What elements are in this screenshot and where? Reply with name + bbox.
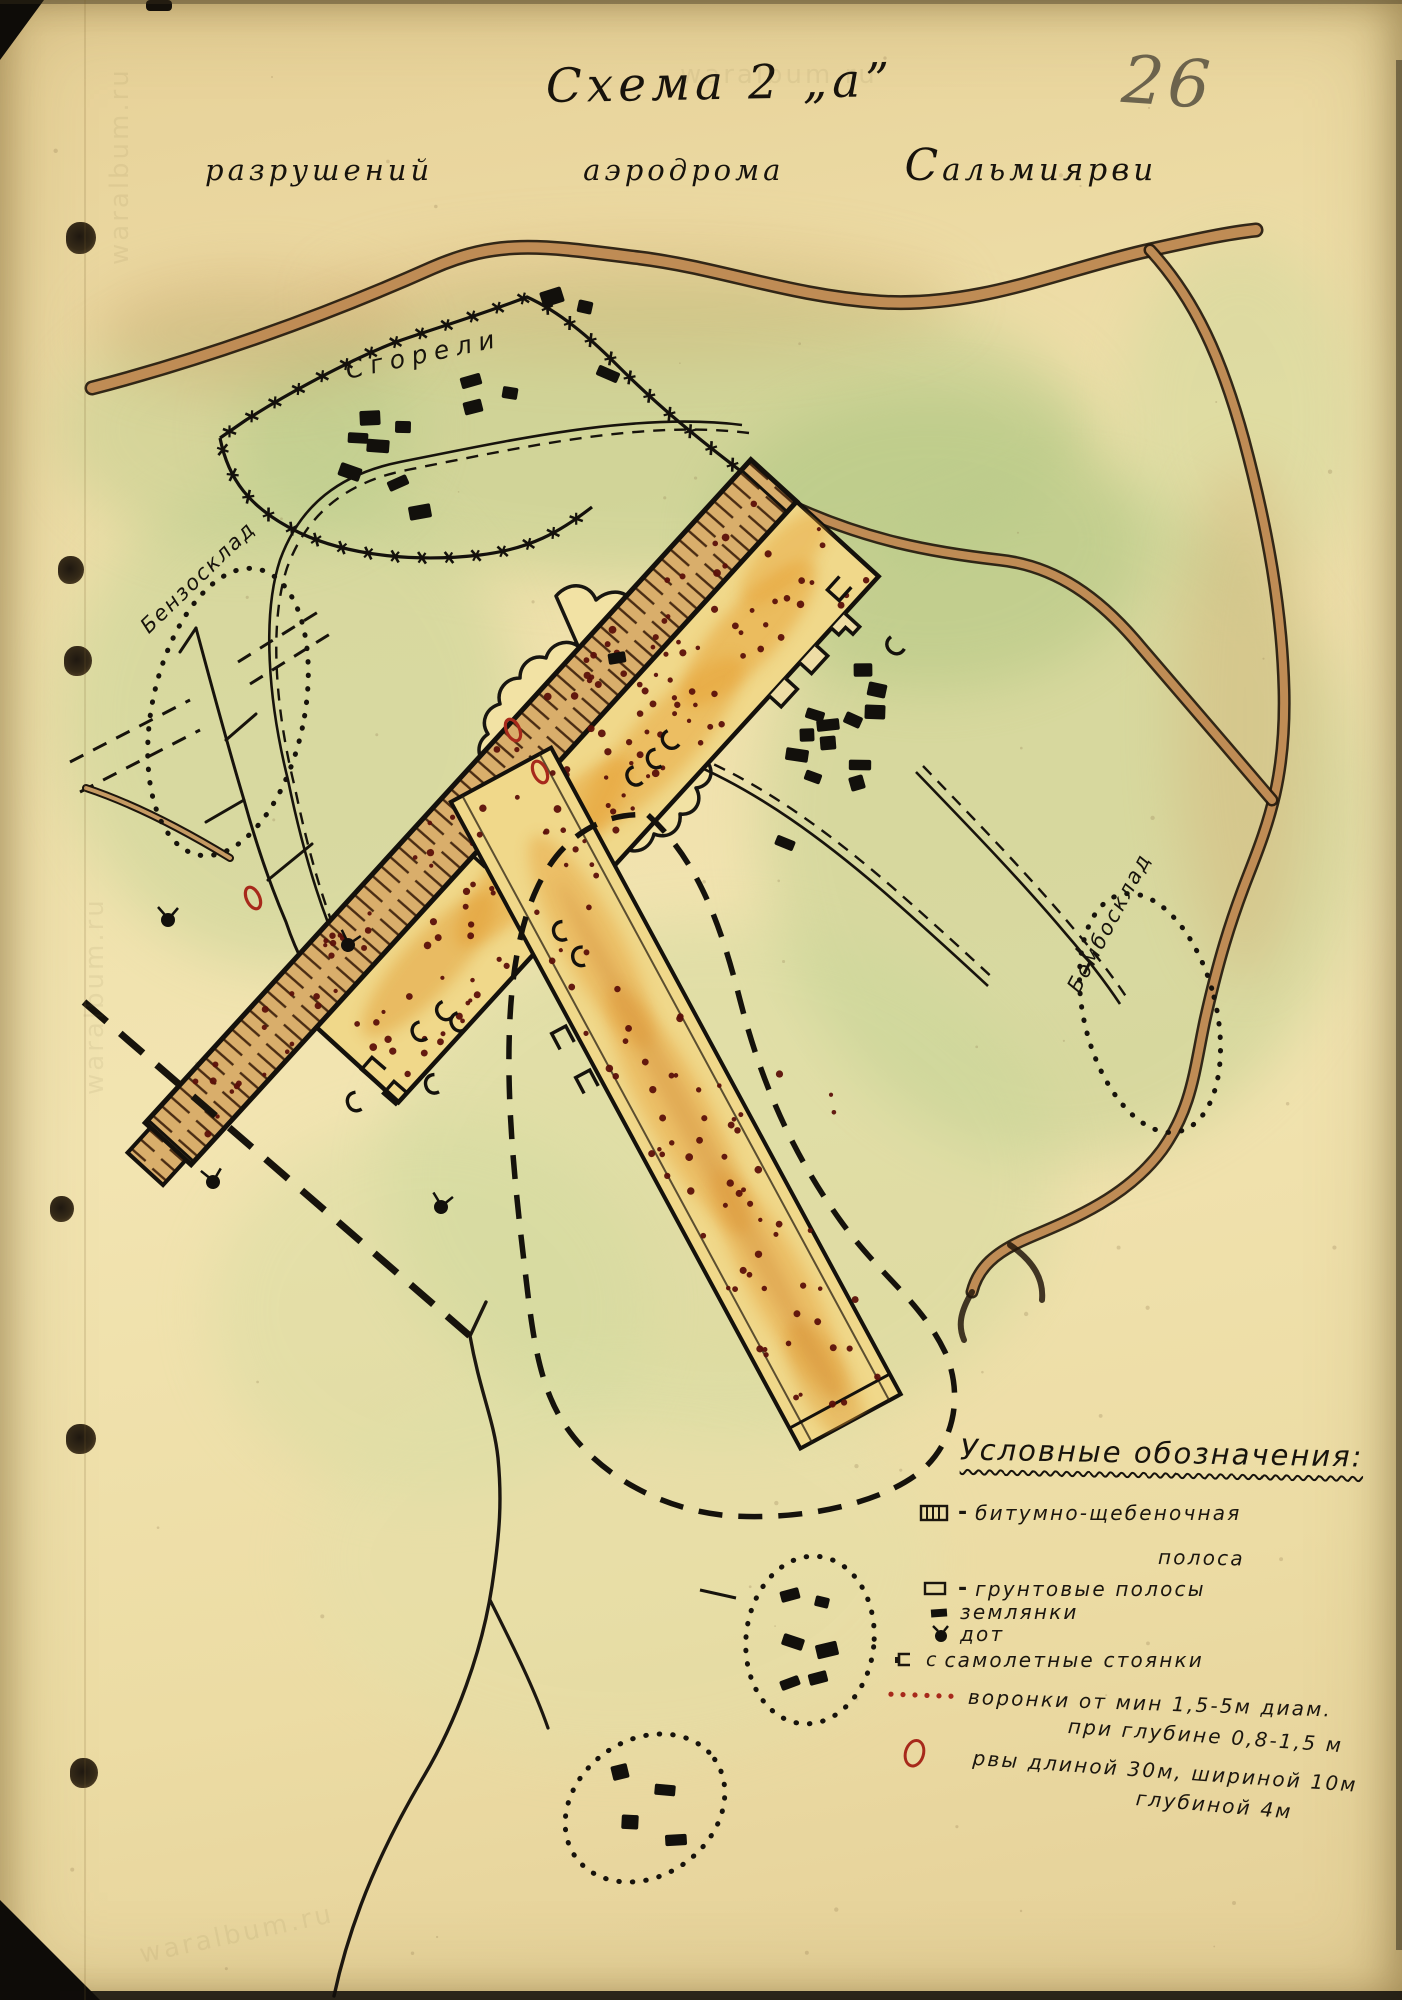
page-subtitle: разрушенийаэродромаСальмиярви [205, 140, 1285, 191]
legend-label: битумно-щебеночная [975, 1501, 1241, 1525]
legend-item-aircraft-stands: с самолетные стоянки [894, 1648, 1204, 1672]
aircraft-stand-icon [894, 1650, 916, 1670]
legend-dash: - [958, 1500, 967, 1525]
legend-label: землянки [960, 1600, 1079, 1624]
watermark: waralbum.ru [105, 67, 135, 265]
crater-dots-icon [886, 1688, 960, 1703]
watermark: waralbum.ru [80, 897, 110, 1095]
bitumen-strip-icon [918, 1502, 950, 1524]
legend-label-cont: полоса [1158, 1545, 1245, 1571]
dirt-strip-icon [922, 1579, 950, 1598]
legend-dash: - [958, 1576, 967, 1601]
watermark: waralbum.ru [680, 60, 878, 90]
legend-title: Условные обозначения: [960, 1432, 1364, 1473]
scanned-map-page: Схема 2 „а” разрушенийаэродромаСальмиярв… [0, 0, 1402, 2000]
legend-item-dugouts: землянки [928, 1600, 1079, 1624]
page-number: 26 [1119, 41, 1216, 124]
stand-letter-mark: с [926, 1649, 936, 1671]
legend-item-bitumen-strip: - битумно-щебеночная [918, 1500, 1241, 1525]
legend-label: самолетные стоянки [944, 1648, 1204, 1672]
pillbox-icon [930, 1624, 952, 1644]
subtitle-word-1: разрушений [205, 153, 433, 187]
ditch-icon [900, 1736, 928, 1770]
legend-label: грунтовые полосы [975, 1577, 1206, 1601]
legend-item-pillbox: дот [930, 1622, 1004, 1646]
subtitle-word-2: аэродрома [583, 153, 784, 187]
subtitle-word-3: Сальмиярви [904, 140, 1157, 191]
dugout-icon [928, 1605, 952, 1620]
legend-label: дот [960, 1622, 1004, 1646]
legend-item-dirt-strips: - грунтовые полосы [922, 1576, 1206, 1601]
